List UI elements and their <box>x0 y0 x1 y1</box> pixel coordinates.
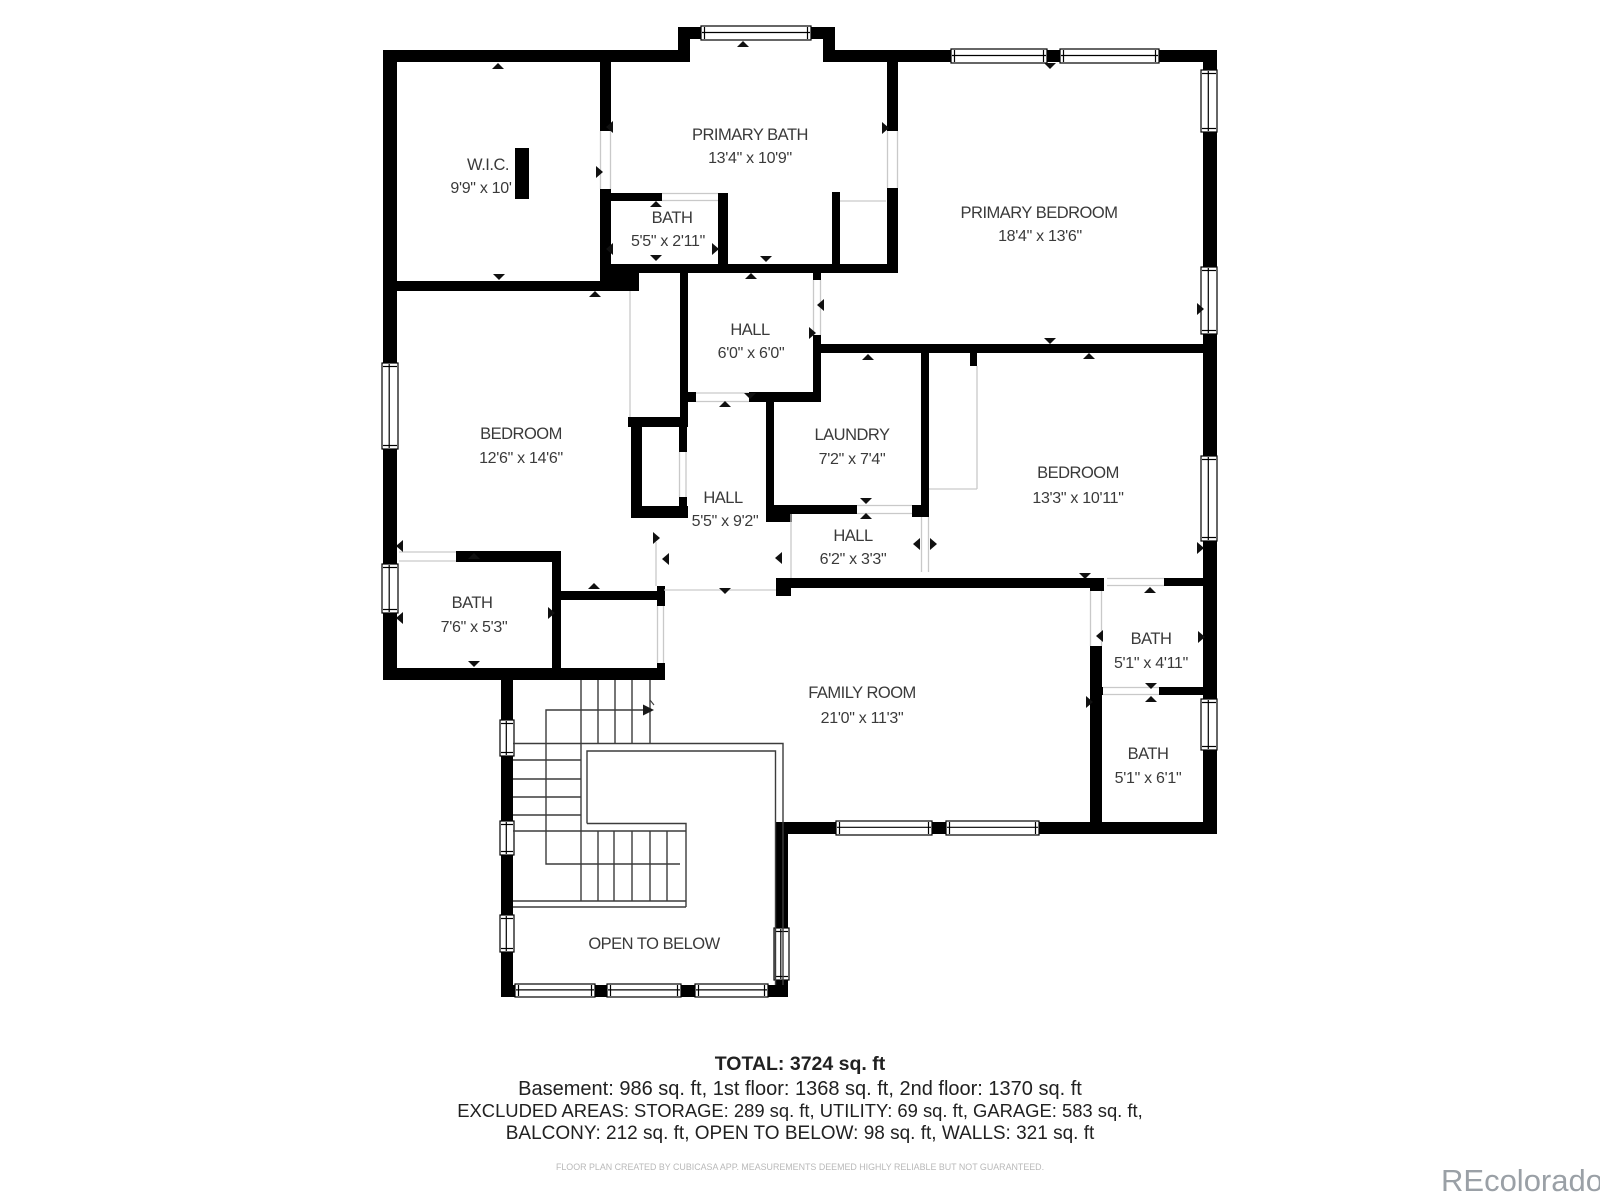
svg-text:BATH: BATH <box>1131 630 1172 648</box>
svg-text:HALL: HALL <box>703 489 743 507</box>
svg-text:12'6" x 14'6": 12'6" x 14'6" <box>479 450 563 467</box>
svg-text:W.I.C.: W.I.C. <box>467 156 509 174</box>
svg-text:BALCONY: 212 sq. ft, OPEN TO B: BALCONY: 212 sq. ft, OPEN TO BELOW: 98 s… <box>506 1123 1095 1144</box>
svg-text:7'6" x 5'3": 7'6" x 5'3" <box>441 619 508 636</box>
svg-text:EXCLUDED AREAS: STORAGE: 289 s: EXCLUDED AREAS: STORAGE: 289 sq. ft, UTI… <box>457 1100 1142 1121</box>
svg-text:7'2" x 7'4": 7'2" x 7'4" <box>819 451 886 468</box>
svg-text:PRIMARY BEDROOM: PRIMARY BEDROOM <box>961 204 1118 222</box>
svg-text:PRIMARY BATH: PRIMARY BATH <box>692 126 808 144</box>
svg-text:21'0" x 11'3": 21'0" x 11'3" <box>821 710 904 727</box>
svg-text:5'5" x 9'2": 5'5" x 9'2" <box>692 513 759 530</box>
svg-text:BEDROOM: BEDROOM <box>480 425 562 443</box>
svg-text:6'0" x 6'0": 6'0" x 6'0" <box>718 345 785 362</box>
svg-text:13'4" x 10'9": 13'4" x 10'9" <box>708 150 792 167</box>
svg-text:BATH: BATH <box>452 594 493 612</box>
svg-text:BEDROOM: BEDROOM <box>1037 464 1119 482</box>
svg-text:HALL: HALL <box>730 321 770 339</box>
svg-text:REcolorado: REcolorado <box>1441 1163 1600 1198</box>
svg-text:OPEN TO BELOW: OPEN TO BELOW <box>588 935 720 953</box>
svg-text:5'1" x 4'11": 5'1" x 4'11" <box>1114 655 1188 672</box>
svg-text:5'5" x 2'11": 5'5" x 2'11" <box>631 233 705 250</box>
svg-text:6'2" x 3'3": 6'2" x 3'3" <box>820 551 887 568</box>
svg-text:5'1" x 6'1": 5'1" x 6'1" <box>1115 770 1182 787</box>
svg-text:9'9" x 10': 9'9" x 10' <box>450 180 512 197</box>
svg-text:BATH: BATH <box>652 209 693 227</box>
svg-text:FLOOR PLAN CREATED BY CUBICASA: FLOOR PLAN CREATED BY CUBICASA APP. MEAS… <box>556 1162 1044 1172</box>
svg-text:LAUNDRY: LAUNDRY <box>814 426 890 444</box>
svg-text:FAMILY ROOM: FAMILY ROOM <box>808 684 916 702</box>
svg-text:18'4" x 13'6": 18'4" x 13'6" <box>998 228 1082 245</box>
svg-text:Basement: 986 sq. ft, 1st floo: Basement: 986 sq. ft, 1st floor: 1368 sq… <box>518 1078 1082 1100</box>
svg-text:TOTAL: 3724 sq. ft: TOTAL: 3724 sq. ft <box>715 1053 886 1075</box>
svg-text:13'3" x 10'11": 13'3" x 10'11" <box>1032 490 1123 507</box>
svg-text:BATH: BATH <box>1128 745 1169 763</box>
svg-text:HALL: HALL <box>833 527 873 545</box>
